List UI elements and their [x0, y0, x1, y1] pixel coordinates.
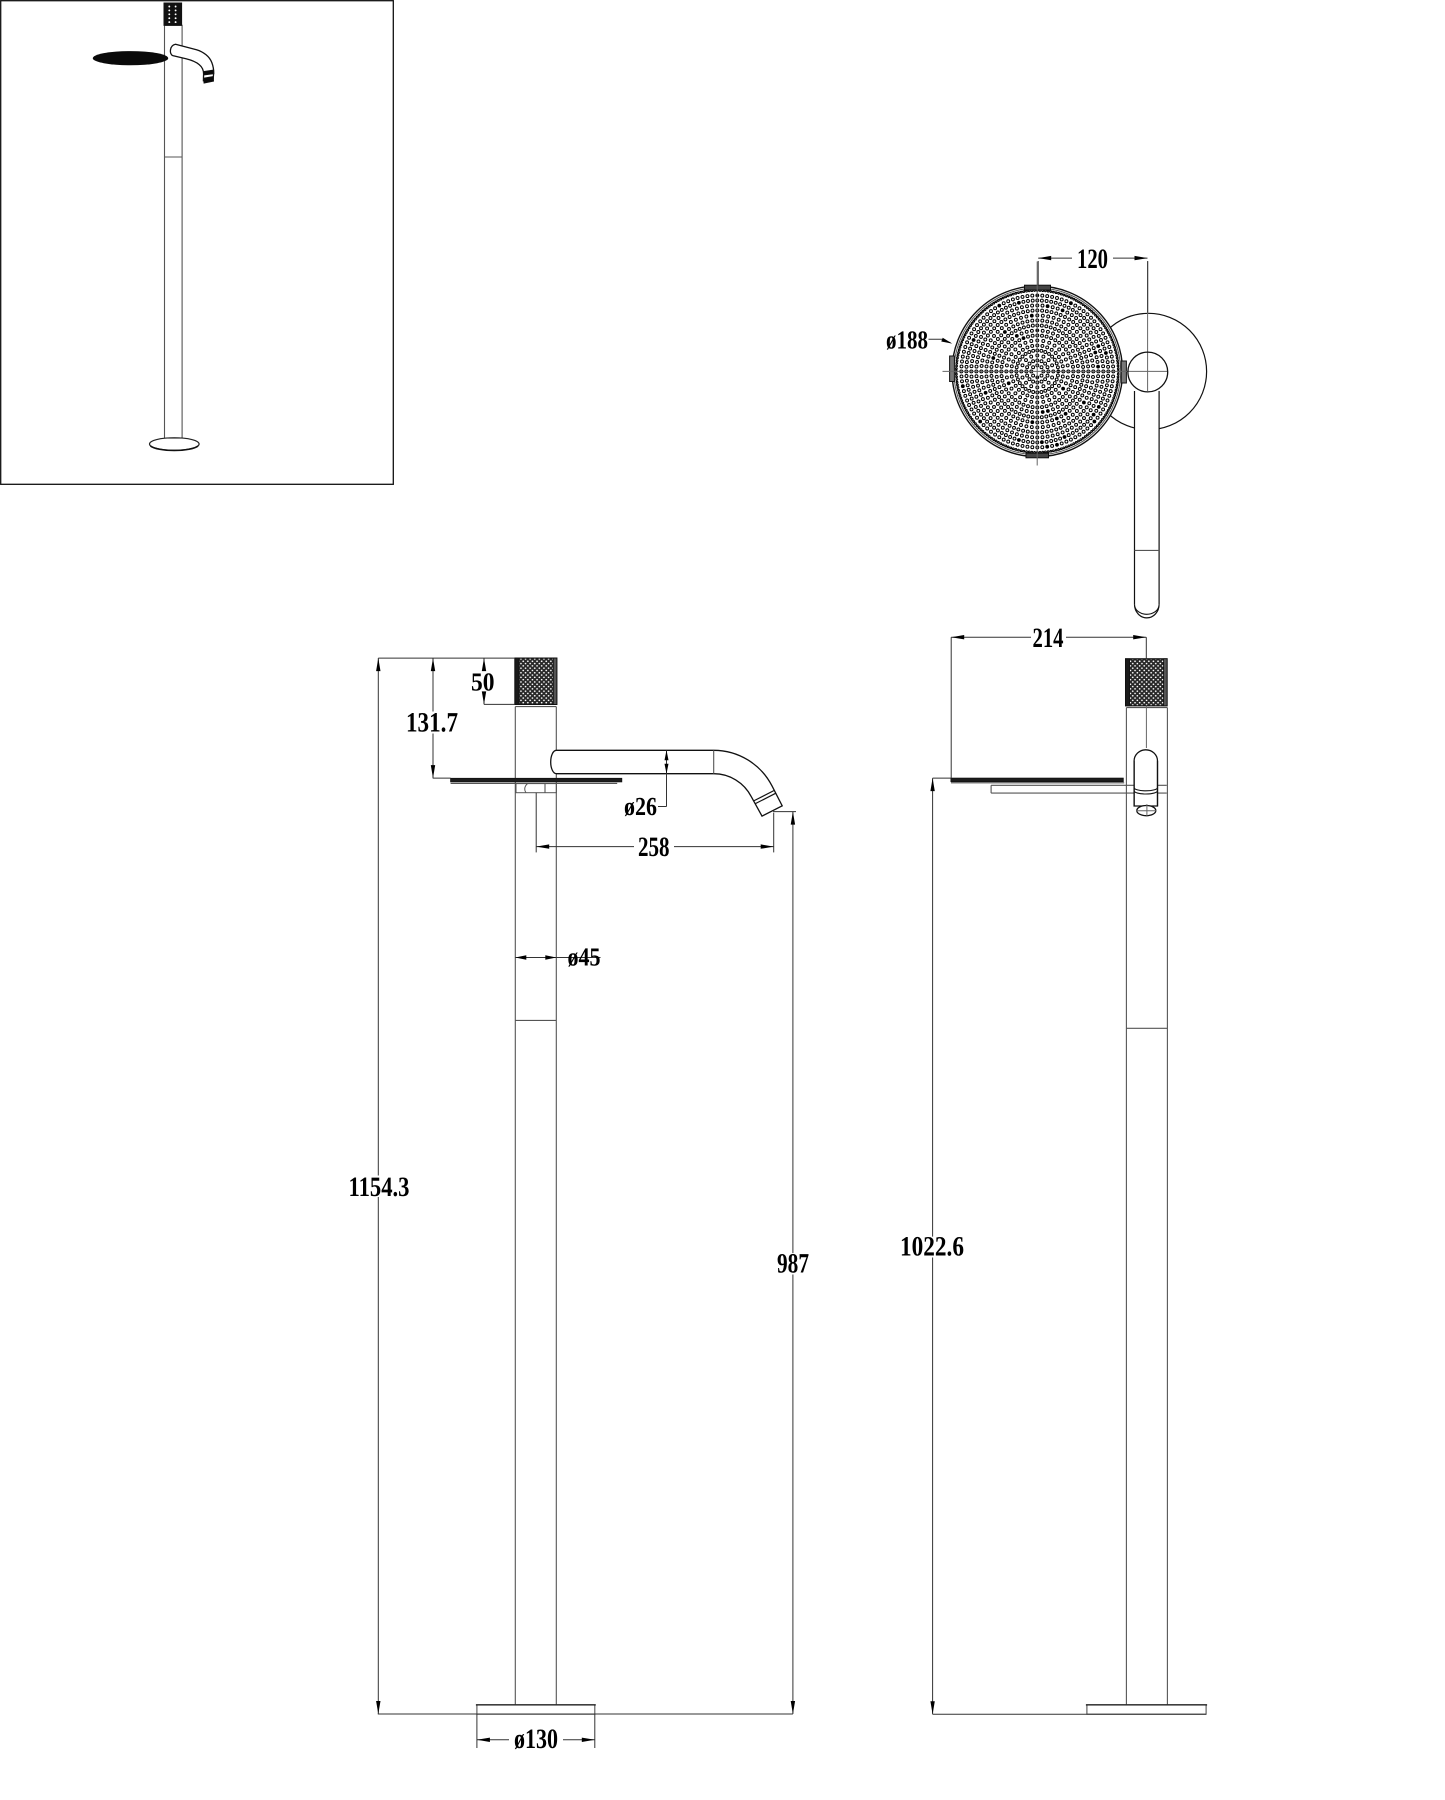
svg-text:ø188: ø188	[886, 325, 928, 354]
svg-text:1154.3: 1154.3	[349, 1172, 410, 1203]
svg-text:ø45: ø45	[568, 943, 601, 972]
svg-text:ø130: ø130	[514, 1724, 558, 1755]
svg-text:258: 258	[638, 832, 670, 863]
svg-text:120: 120	[1077, 244, 1108, 275]
svg-text:131.7: 131.7	[406, 708, 458, 739]
svg-text:ø26: ø26	[624, 792, 657, 821]
svg-text:50: 50	[471, 668, 495, 697]
svg-text:987: 987	[777, 1249, 809, 1280]
svg-text:214: 214	[1033, 623, 1064, 654]
svg-text:1022.6: 1022.6	[900, 1232, 964, 1263]
